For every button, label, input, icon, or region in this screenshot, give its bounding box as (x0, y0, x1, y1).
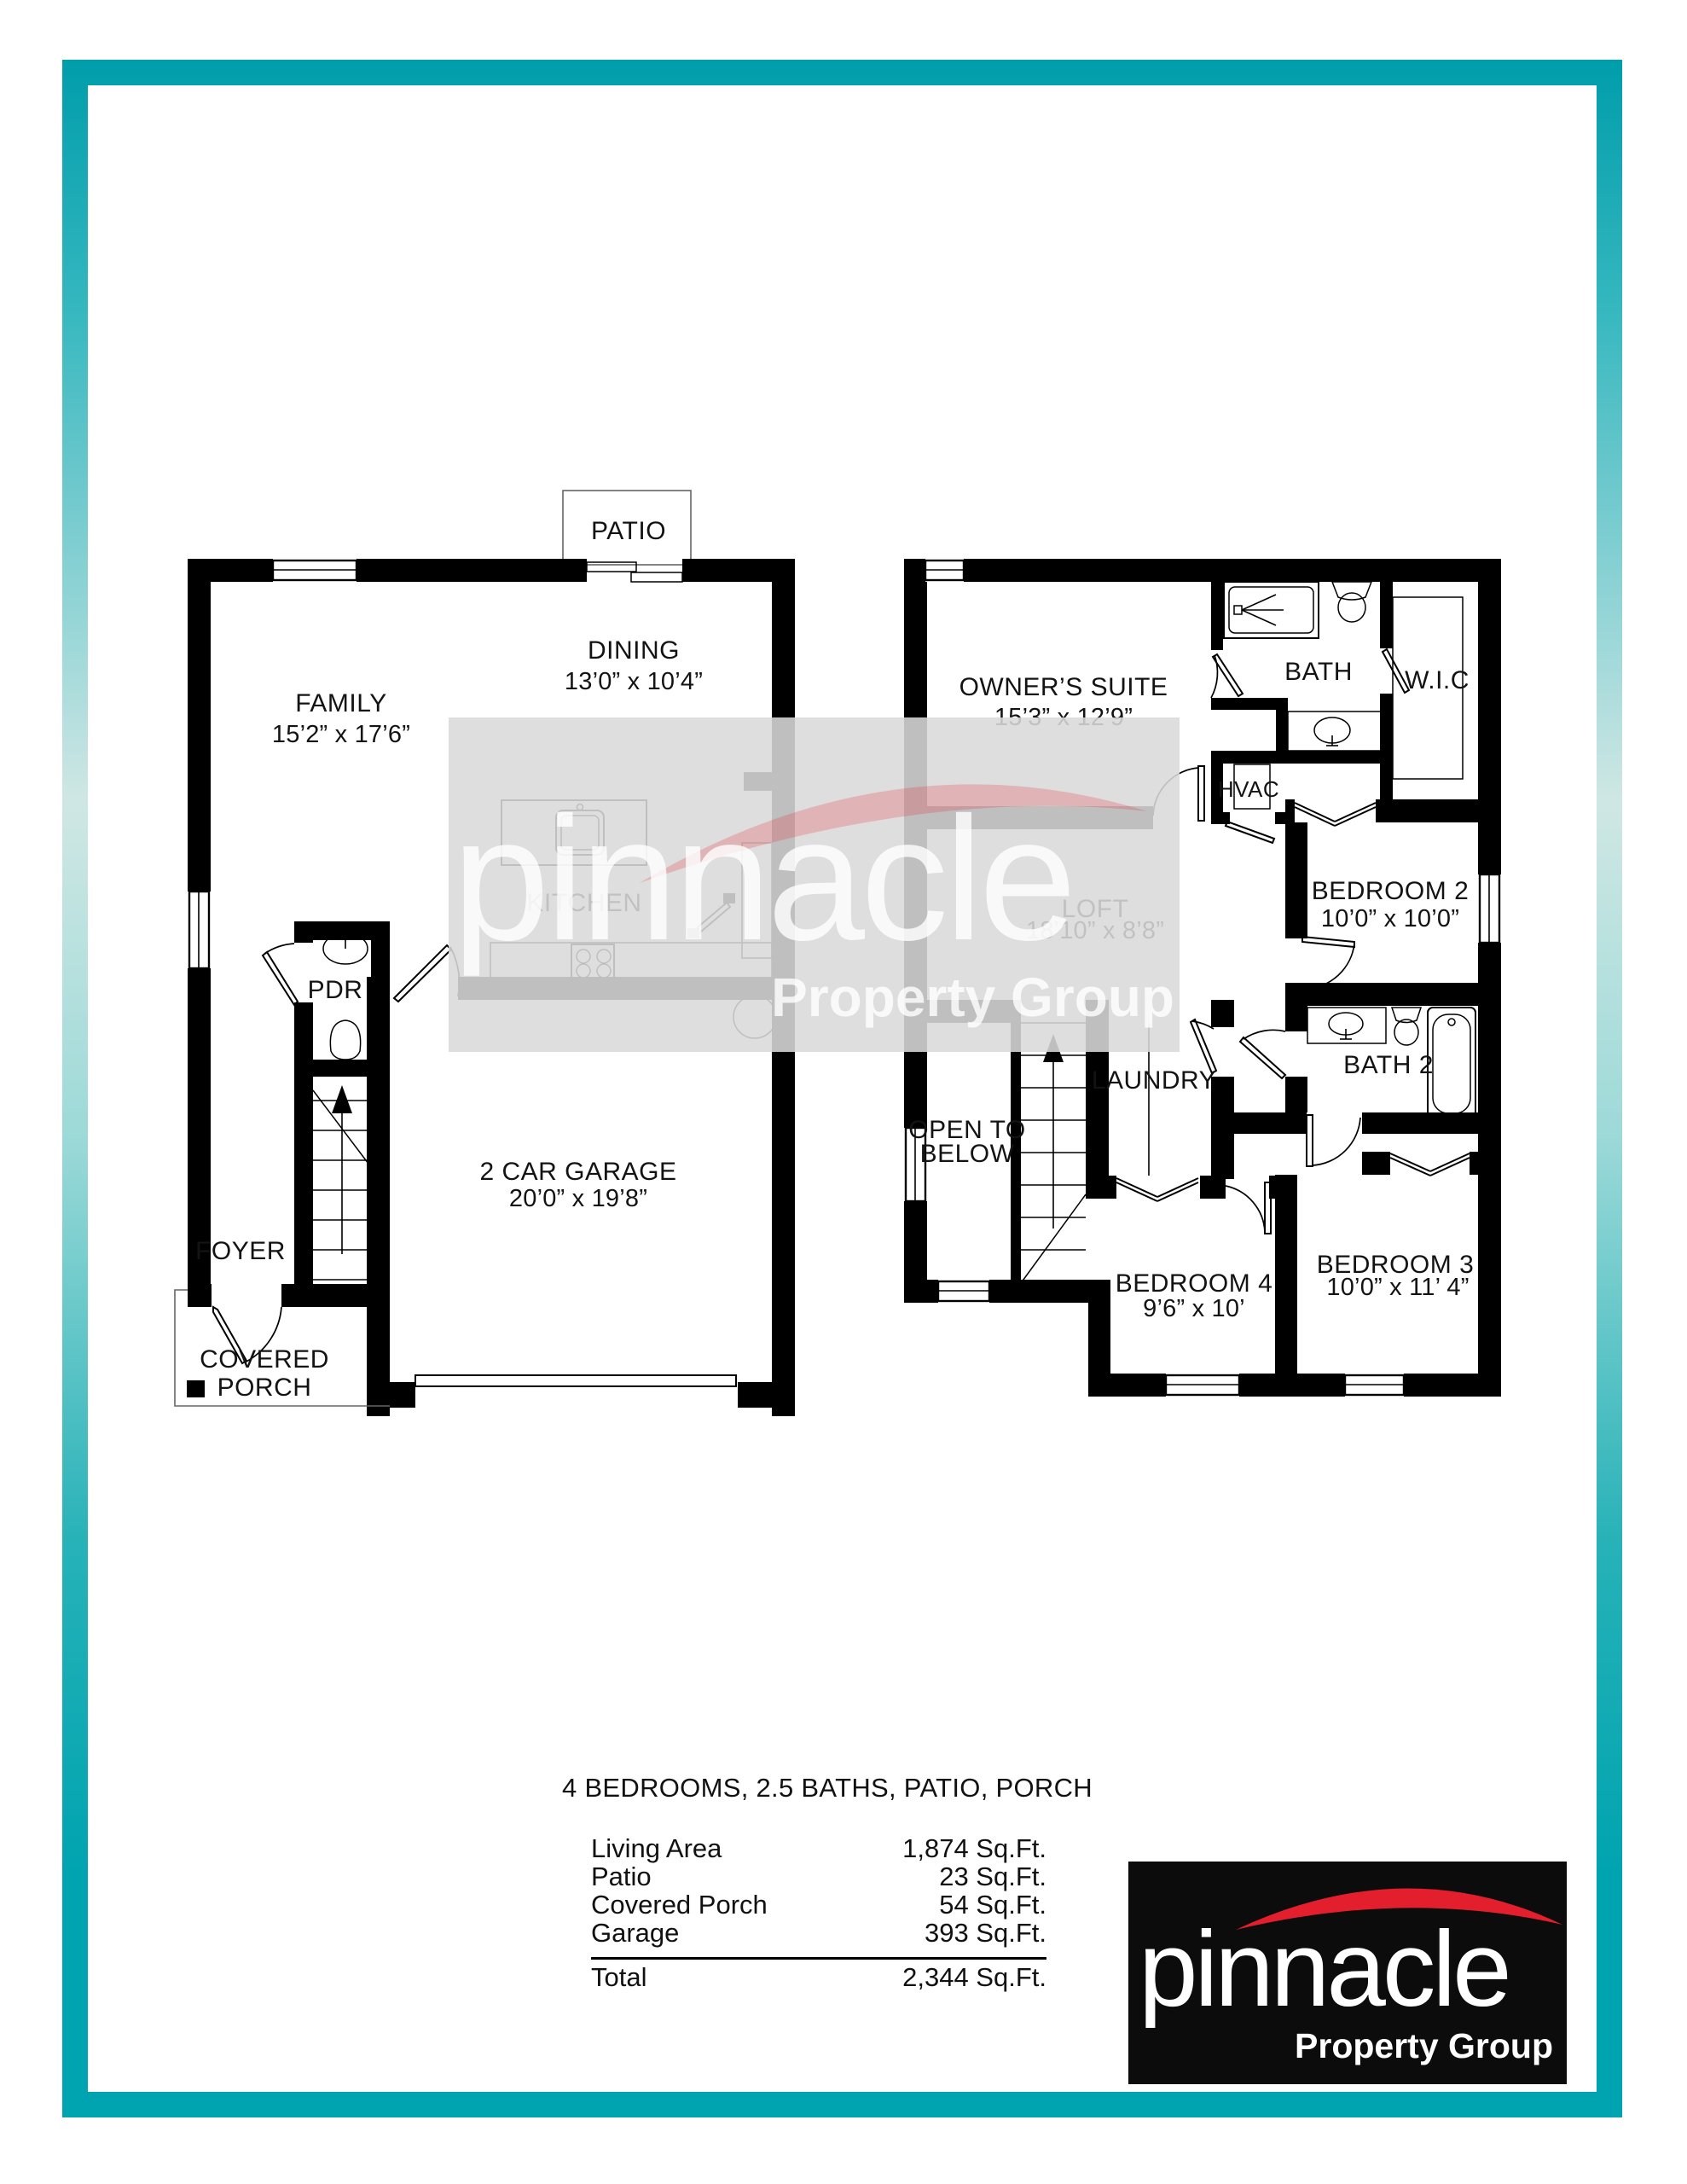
area-row-living: Living Area 1,874 Sq.Ft. (591, 1834, 1046, 1862)
area-label: Covered Porch (591, 1891, 768, 1919)
window (189, 892, 209, 968)
table-divider (591, 1957, 1046, 1960)
bedroom3-closet-bifold (1390, 1153, 1470, 1176)
room-label-wic: W.I.C (1405, 666, 1470, 694)
logo-brand-tagline: Property Group (1295, 2029, 1553, 2064)
bathtub-icon (1428, 1008, 1475, 1120)
bath-door (1211, 654, 1243, 698)
area-value: 23 Sq.Ft. (939, 1862, 1046, 1891)
total-value: 2,344 Sq.Ft. (902, 1963, 1046, 1992)
room-label-pdr: PDR (308, 976, 363, 1004)
room-label-open-below-2: BELOW (920, 1140, 1015, 1168)
watermark-brand-name: pinnacle (452, 791, 1072, 967)
area-value: 393 Sq.Ft. (925, 1919, 1046, 1947)
room-label-covered-porch-2: PORCH (217, 1374, 312, 1402)
room-label-garage: 2 CAR GARAGE (479, 1158, 676, 1186)
area-row-total: Total 2,344 Sq.Ft. (591, 1963, 1046, 1992)
garage-door (415, 1375, 736, 1386)
pinnacle-logo: pinnacle Property Group (1128, 1862, 1567, 2084)
window (938, 1281, 989, 1301)
room-label-bath: BATH (1284, 658, 1353, 686)
watermark-brand-tagline: Property Group (771, 970, 1174, 1025)
floorplan-page: PATIO DINING 13’0” x 10’4” FAMILY 15’2” … (0, 0, 1687, 2184)
logo-brand-name: pinnacle (1139, 1916, 1509, 2023)
room-dims-family: 15’2” x 17’6” (272, 721, 410, 748)
room-label-foyer: FOYER (195, 1237, 286, 1265)
room-label-covered-porch: COVERED (200, 1345, 329, 1374)
bedroom2-door (1302, 937, 1354, 989)
bath2-toilet-icon (1392, 1008, 1421, 1045)
watermark: pinnacle Property Group (449, 717, 1180, 1052)
linen-bifold-doors (1295, 803, 1376, 826)
pdr-toilet-icon (330, 1020, 360, 1060)
window (925, 561, 964, 580)
room-label-bedroom2: BEDROOM 2 (1312, 877, 1470, 905)
room-dims-bedroom3: 10’0” x 11’ 4” (1326, 1274, 1469, 1301)
bath2-sink-icon (1307, 1008, 1386, 1043)
area-row-garage: Garage 393 Sq.Ft. (591, 1919, 1046, 1947)
stairs-up-icon (1021, 1023, 1086, 1283)
room-label-hvac: HVAC (1218, 776, 1279, 802)
total-label: Total (591, 1963, 646, 1992)
room-label-owners-suite: OWNER’S SUITE (959, 673, 1168, 701)
area-row-porch: Covered Porch 54 Sq.Ft. (591, 1891, 1046, 1919)
pdr-door (263, 943, 313, 1005)
room-label-dining: DINING (588, 636, 680, 665)
room-label-laundry: LAUNDRY (1092, 1066, 1216, 1095)
window (1480, 874, 1499, 943)
area-value: 54 Sq.Ft. (939, 1891, 1046, 1919)
area-label: Patio (591, 1862, 652, 1891)
bedroom3-door (1307, 1115, 1360, 1166)
room-label-bath2: BATH 2 (1343, 1051, 1434, 1079)
area-value: 1,874 Sq.Ft. (902, 1834, 1046, 1862)
area-label: Garage (591, 1919, 679, 1947)
bath-sink-icon (1288, 712, 1382, 751)
area-table: Living Area 1,874 Sq.Ft. Patio 23 Sq.Ft.… (591, 1834, 1046, 1992)
area-label: Living Area (591, 1834, 722, 1862)
summary-headline: 4 BEDROOMS, 2.5 BATHS, PATIO, PORCH (503, 1773, 1151, 1804)
bath2-door (1240, 1030, 1285, 1078)
window (1345, 1375, 1404, 1395)
laundry-door (1191, 1019, 1216, 1073)
window (273, 561, 357, 580)
room-label-patio: PATIO (591, 517, 666, 545)
stairs-icon (313, 1085, 371, 1280)
window (1166, 1375, 1239, 1395)
toilet-icon (1332, 582, 1371, 622)
room-dims-bedroom2: 10’0” x 10’0” (1321, 905, 1459, 932)
bedroom4-door (1226, 1182, 1271, 1234)
room-dims-garage: 20’0” x 19’8” (509, 1185, 647, 1212)
room-dims-bedroom4: 9’6” x 10’ (1143, 1295, 1245, 1322)
bedroom4-closet-bifold (1116, 1178, 1198, 1201)
room-dims-dining: 13’0” x 10’4” (565, 668, 703, 695)
area-row-patio: Patio 23 Sq.Ft. (591, 1862, 1046, 1891)
shower-icon (1224, 582, 1319, 638)
room-label-family: FAMILY (295, 689, 386, 717)
room-label-bedroom4: BEDROOM 4 (1116, 1269, 1273, 1298)
